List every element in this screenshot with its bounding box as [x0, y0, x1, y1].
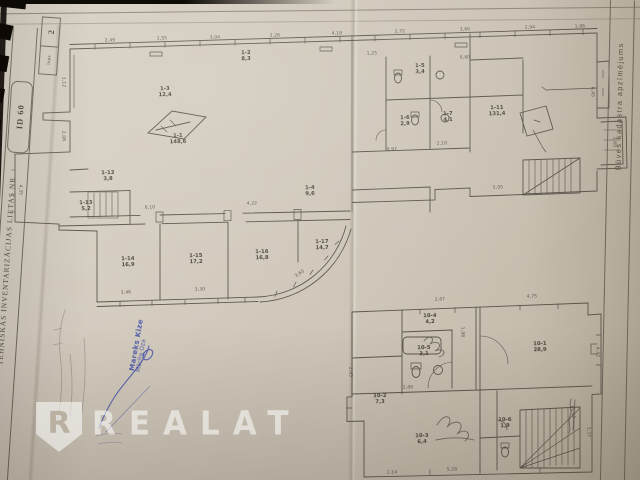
page-number: 2 — [45, 29, 55, 34]
page-caption: lapa — [46, 55, 52, 65]
floor-plan-drawing — [0, 0, 640, 480]
floor-plan-svg — [0, 0, 640, 480]
background-top-edge — [0, 0, 335, 4]
photo-frame: 1-1 148,61-3 12,41-2 8,31-5 3,41-6 2,91-… — [0, 0, 640, 480]
page-number-box: 2 lapa — [38, 16, 61, 75]
